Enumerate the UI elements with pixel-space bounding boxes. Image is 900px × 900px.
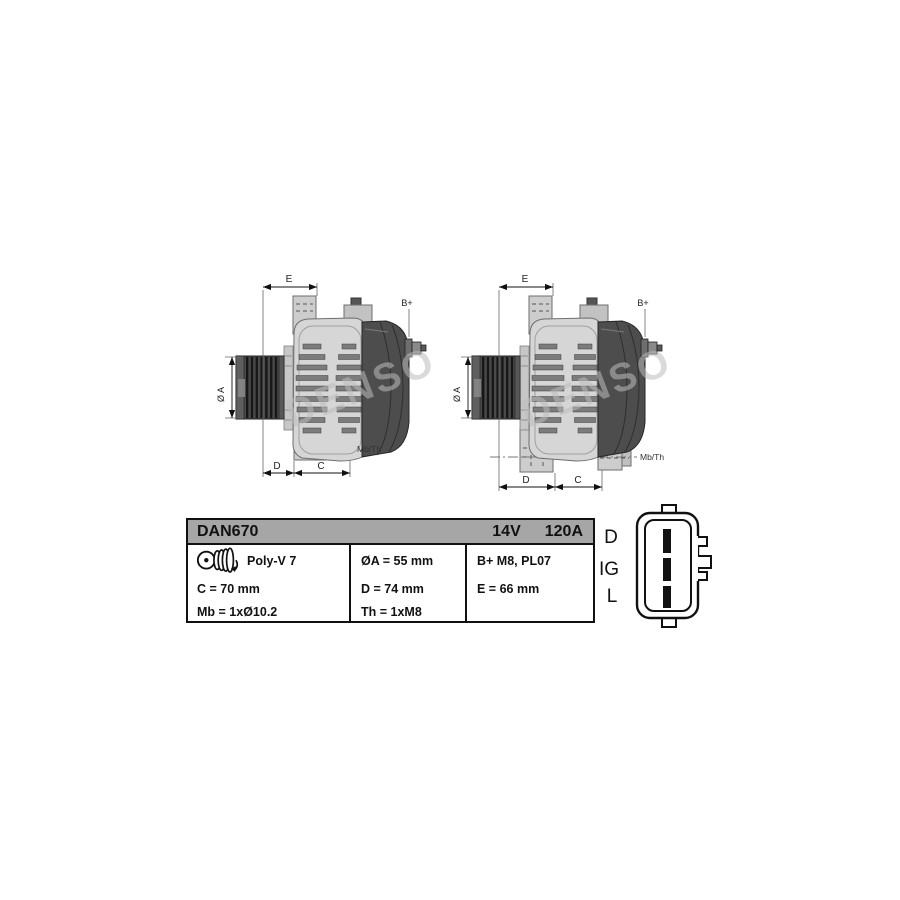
connector-side-tabs — [695, 536, 711, 581]
pin-label-l: L — [607, 586, 618, 607]
pulley — [472, 356, 520, 419]
page-background: { "drawing_labels": { "e": "E", "d": "D"… — [0, 0, 900, 900]
pulley-spec-cell: Poly-V 7 — [188, 545, 349, 576]
svg-text:B+: B+ — [637, 298, 648, 308]
svg-text:C: C — [574, 475, 581, 486]
spec-empty — [465, 602, 593, 621]
svg-text:Ø A: Ø A — [216, 387, 226, 402]
spec-table: DAN670 14V 120A Poly-V 7 ØA = 55 mm B+ M… — [186, 518, 595, 623]
spec-mb: Mb = 1xØ10.2 — [188, 602, 349, 621]
pulley-icon — [197, 546, 241, 576]
dimension-d-c: D C — [499, 470, 602, 491]
spec-d: D = 74 mm — [349, 576, 465, 602]
spec-th: Th = 1xM8 — [349, 602, 465, 621]
pulley — [236, 356, 284, 419]
spec-oa: ØA = 55 mm — [349, 545, 465, 576]
svg-text:B+: B+ — [401, 298, 412, 308]
pulley-type-label: Poly-V 7 — [247, 554, 296, 568]
mbth-label: Mb/Th — [640, 452, 664, 462]
svg-text:D: D — [273, 461, 280, 472]
alternator-drawing-right: DENSO E Ø A D C B+ Mb/Th — [445, 265, 680, 500]
amperage-rating: 120A — [545, 523, 583, 541]
part-number: DAN670 — [188, 523, 258, 541]
spec-table-header: DAN670 14V 120A — [188, 520, 593, 545]
spec-table-body: Poly-V 7 ØA = 55 mm B+ M8, PL07 C = 70 m… — [188, 545, 593, 621]
pin-label-ig: IG — [599, 559, 619, 580]
pin-label-d: D — [604, 527, 618, 548]
voltage-rating: 14V — [492, 523, 520, 541]
alternator-drawing-left: DENSO E Ø A D C B+ Mb/Th — [215, 265, 445, 500]
svg-text:Ø A: Ø A — [452, 387, 462, 402]
dimension-d-c: D C — [263, 461, 350, 477]
svg-text:D: D — [522, 475, 529, 486]
svg-text:E: E — [522, 274, 529, 285]
spec-c: C = 70 mm — [188, 576, 349, 602]
mbth-label: Mb/Th — [357, 444, 381, 454]
connector-diagram: D IG L — [595, 498, 720, 638]
spec-e: E = 66 mm — [465, 576, 593, 602]
svg-text:C: C — [317, 461, 324, 472]
spec-bplus: B+ M8, PL07 — [465, 545, 593, 576]
connector-pins — [663, 529, 671, 608]
svg-text:E: E — [286, 274, 293, 285]
